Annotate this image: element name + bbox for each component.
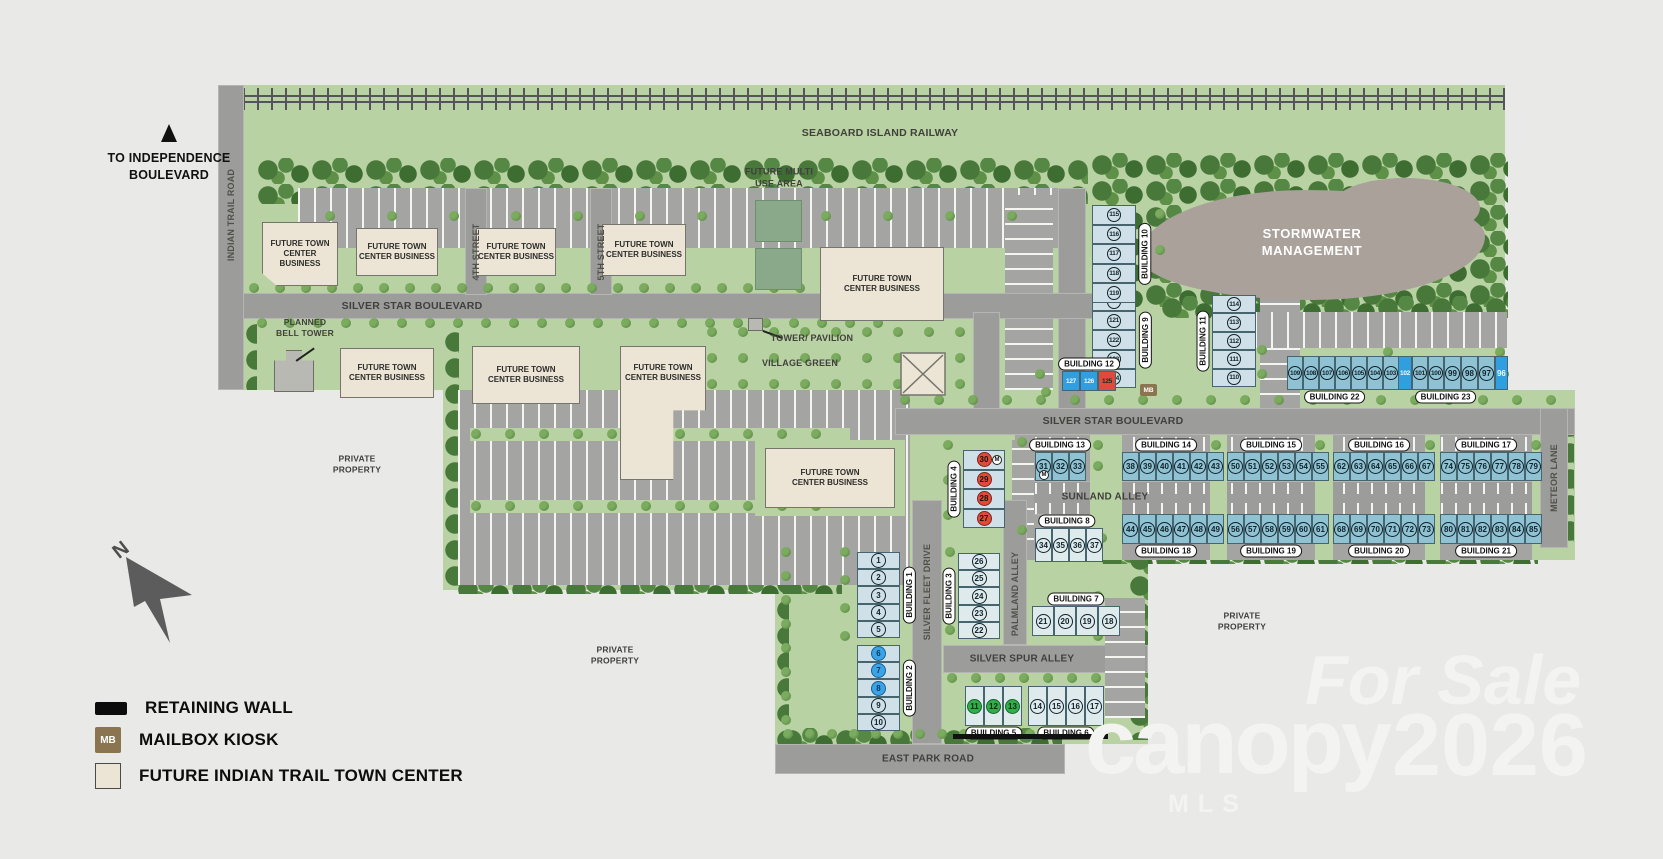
tree-icon <box>483 283 493 293</box>
lot-28: 28 <box>963 489 1005 509</box>
lot-number-100: 100 <box>1429 366 1443 380</box>
lot-58: 58 <box>1261 514 1278 544</box>
road-silver-star-east <box>895 408 1575 435</box>
road-label-meteor: METEOR LANE <box>1549 444 1559 512</box>
lot-number-37: 37 <box>1087 538 1102 553</box>
lot-79: 79 <box>1525 452 1542 481</box>
lot-number-71: 71 <box>1385 522 1400 537</box>
tree-icon <box>387 211 397 221</box>
tree-icon <box>781 619 791 629</box>
building-label: FUTURE TOWN <box>358 363 417 373</box>
lot-73: 73 <box>1418 514 1435 544</box>
lot-6: 6 <box>857 645 900 662</box>
tree-icon <box>341 318 351 328</box>
tree-icon <box>781 691 791 701</box>
tree-icon <box>1091 673 1101 683</box>
lot-72: 72 <box>1401 514 1418 544</box>
tree-icon <box>405 283 415 293</box>
lot-number-79: 79 <box>1526 459 1541 474</box>
building-10: BUILDING 10115116117118119 <box>1092 205 1136 303</box>
lot-110: 110 <box>1212 369 1256 387</box>
lot-9: 9 <box>857 697 900 714</box>
tree-icon <box>995 673 1005 683</box>
building-23-label: BUILDING 23 <box>1415 391 1477 404</box>
tree-icon <box>1067 673 1077 683</box>
tree-icon <box>840 603 850 613</box>
lot-number-101: 101 <box>1413 366 1427 380</box>
lot-number-33: 33 <box>1070 459 1085 474</box>
lot-80: 80 <box>1440 514 1457 544</box>
tree-icon <box>811 429 821 439</box>
lot-number-53: 53 <box>1279 459 1294 474</box>
lot-65: 65 <box>1384 452 1401 481</box>
tree-icon <box>1019 673 1029 683</box>
lot-39: 39 <box>1139 452 1156 481</box>
north-pointer-icon <box>161 124 177 142</box>
tree-icon <box>738 353 748 363</box>
lot-number-3: 3 <box>871 588 886 603</box>
lot-number-50: 50 <box>1228 459 1243 474</box>
lot-number-28: 28 <box>977 491 992 506</box>
lot-71: 71 <box>1384 514 1401 544</box>
lot-117: 117 <box>1092 244 1136 264</box>
tree-icon <box>1002 395 1012 405</box>
building-22: BUILDING 22109108107106105104103 <box>1287 356 1382 390</box>
lot-67: 67 <box>1418 452 1435 481</box>
building-label: CENTER BUSINESS <box>359 252 435 262</box>
tree-icon <box>249 283 259 293</box>
tree-icon <box>453 318 463 328</box>
lot-12: 12 <box>984 686 1003 726</box>
lot-number-13: 13 <box>1005 699 1020 714</box>
tree-icon <box>915 729 925 739</box>
building-label: CENTER BUSINESS <box>792 478 868 488</box>
lot-number-122: 122 <box>1107 333 1121 347</box>
tree-icon <box>781 715 791 725</box>
stormwater-label-line2: MANAGEMENT <box>1262 243 1363 260</box>
lot-number-34: 34 <box>1036 538 1051 553</box>
lot-104: 104 <box>1367 356 1383 390</box>
lot-59: 59 <box>1278 514 1295 544</box>
road-label-east-park: EAST PARK ROAD <box>882 754 974 765</box>
tree-icon <box>781 595 791 605</box>
tree-icon <box>1206 395 1216 405</box>
building-20-label: BUILDING 20 <box>1348 545 1410 558</box>
lot-83: 83 <box>1491 514 1508 544</box>
tree-icon <box>1155 209 1165 219</box>
tree-icon <box>781 547 791 557</box>
lot-number-76: 76 <box>1475 459 1490 474</box>
lot-number-97: 97 <box>1479 366 1494 381</box>
meter-marker-icon: M <box>992 455 1002 465</box>
building-7-label: BUILDING 7 <box>1047 593 1104 606</box>
lot-126: 126 <box>1080 371 1098 391</box>
lot-number-61: 61 <box>1313 522 1328 537</box>
lot-number-5: 5 <box>871 622 886 637</box>
lot-number-59: 59 <box>1279 522 1294 537</box>
tree-icon <box>789 318 799 328</box>
lot-number-39: 39 <box>1140 459 1155 474</box>
tree-icon <box>937 729 947 739</box>
lot-49: 49 <box>1207 514 1224 544</box>
lot-25: 25 <box>958 570 1000 587</box>
lot-116: 116 <box>1092 225 1136 245</box>
building-12: BUILDING 12127126125 <box>1062 371 1116 391</box>
tree-icon <box>827 729 837 739</box>
lot-76: 76 <box>1474 452 1491 481</box>
private-property-label-2: PRIVATE PROPERTY <box>591 645 639 668</box>
private-property-line1: PRIVATE <box>591 645 639 656</box>
lot-number-26: 26 <box>972 554 987 569</box>
lot-17: 17 <box>1085 686 1104 726</box>
legend-retaining-wall-label: RETAINING WALL <box>145 698 293 718</box>
legend-mailbox-kiosk-label: MAILBOX KIOSK <box>139 730 279 750</box>
lot-107: 107 <box>1319 356 1335 390</box>
lot-number-84: 84 <box>1509 522 1524 537</box>
lot-114: 114 <box>1212 295 1256 313</box>
tree-icon <box>709 429 719 439</box>
tree-icon <box>1007 211 1017 221</box>
legend-mailbox-kiosk: MB MAILBOX KIOSK <box>95 727 279 753</box>
tree-icon <box>1257 345 1267 355</box>
lot-number-1: 1 <box>871 553 886 568</box>
watermark-for-sale: For Sale <box>1305 640 1581 720</box>
building-18: BUILDING 18444546474849 <box>1122 514 1210 544</box>
lot-number-58: 58 <box>1262 522 1277 537</box>
tree-icon <box>945 547 955 557</box>
building-19: BUILDING 19565758596061 <box>1227 514 1315 544</box>
building-6: BUILDING 614151617 <box>1028 686 1104 726</box>
lot-number-99: 99 <box>1445 366 1460 381</box>
lot-number-38: 38 <box>1123 459 1138 474</box>
tree-icon <box>955 379 965 389</box>
stormwater-label-line1: STORMWATER <box>1262 226 1363 243</box>
road-label-silver-star-west: SILVER STAR BOULEVARD <box>342 300 483 312</box>
lot-23: 23 <box>958 605 1000 622</box>
tree-icon <box>709 501 719 511</box>
tree-icon <box>397 318 407 328</box>
lot-number-126: 126 <box>1083 378 1095 385</box>
tree-icon <box>971 673 981 683</box>
lot-125: 125 <box>1098 371 1116 391</box>
building-22-label: BUILDING 22 <box>1304 391 1366 404</box>
tree-icon <box>369 318 379 328</box>
tree-icon <box>1546 395 1556 405</box>
lot-100: 100 <box>1428 356 1444 390</box>
building-label: FUTURE TOWN <box>615 240 674 250</box>
retaining-wall-icon <box>95 702 127 715</box>
tree-icon <box>924 327 934 337</box>
north-arrow-shape <box>126 557 192 643</box>
lot-number-73: 73 <box>1419 522 1434 537</box>
tree-icon <box>613 283 623 293</box>
lot-41: 41 <box>1173 452 1190 481</box>
building-7: BUILDING 721201918 <box>1032 606 1120 636</box>
lot-number-110: 110 <box>1227 371 1241 385</box>
tree-icon <box>607 501 617 511</box>
building-8-label: BUILDING 8 <box>1038 515 1095 528</box>
lot-number-54: 54 <box>1296 459 1311 474</box>
tree-icon <box>505 501 515 511</box>
lot-98: 98 <box>1461 356 1478 390</box>
lot-27: 27 <box>963 509 1005 529</box>
lot-number-125: 125 <box>1101 378 1113 385</box>
lot-number-23: 23 <box>972 606 987 621</box>
lot-105: 105 <box>1351 356 1367 390</box>
tree-icon <box>1315 440 1325 450</box>
mailbox-kiosk-icon: MB <box>1140 384 1157 396</box>
lot-number-17: 17 <box>1087 699 1102 714</box>
tree-icon <box>511 211 521 221</box>
lot-number-111: 111 <box>1227 352 1241 366</box>
lot-62: 62 <box>1333 452 1350 481</box>
building-4: BUILDING 430M292827 <box>963 450 1005 528</box>
building-12-label: BUILDING 12 <box>1058 358 1120 371</box>
tree-icon <box>840 575 850 585</box>
lot-number-43: 43 <box>1208 459 1223 474</box>
lot-number-40: 40 <box>1157 459 1172 474</box>
tree-icon <box>353 283 363 293</box>
tree-band-parking-west <box>443 330 459 586</box>
lot-number-63: 63 <box>1351 459 1366 474</box>
lot-number-51: 51 <box>1245 459 1260 474</box>
building-4-label: BUILDING 4 <box>948 460 961 517</box>
pavilion-x-structure <box>900 352 946 396</box>
tree-icon <box>1172 395 1182 405</box>
building-16-label: BUILDING 16 <box>1348 439 1410 452</box>
tree-icon <box>1070 395 1080 405</box>
tree-icon <box>635 211 645 221</box>
lot-113: 113 <box>1212 313 1256 331</box>
tree-icon <box>537 318 547 328</box>
lot-number-49: 49 <box>1208 522 1223 537</box>
lot-number-10: 10 <box>871 715 886 730</box>
lot-78: 78 <box>1508 452 1525 481</box>
lot-10: 10 <box>857 714 900 731</box>
future-business-building-2: FUTURE TOWN CENTER BUSINESS <box>356 228 438 276</box>
lot-64: 64 <box>1367 452 1384 481</box>
tree-icon <box>449 211 459 221</box>
building-11-label: BUILDING 11 <box>1197 310 1210 371</box>
tree-icon <box>1017 525 1027 535</box>
building-label: CENTER BUSINESS <box>263 249 337 269</box>
private-property-line2: PROPERTY <box>1218 622 1266 633</box>
legend-retaining-wall: RETAINING WALL <box>95 698 293 718</box>
lot-101: 101 <box>1412 356 1428 390</box>
future-multi-line1: FUTURE MULTI <box>745 166 813 178</box>
lot-13: 13 <box>1003 686 1022 726</box>
lot-number-113: 113 <box>1227 316 1241 330</box>
building-2: BUILDING 2678910 <box>857 645 900 731</box>
lot-number-29: 29 <box>977 472 992 487</box>
lot-number-77: 77 <box>1492 459 1507 474</box>
lot-42: 42 <box>1190 452 1207 481</box>
lot-number-7: 7 <box>871 663 886 678</box>
tree-icon <box>1093 440 1103 450</box>
lot-1: 1 <box>857 552 900 569</box>
watermark-mls: MLS <box>1168 790 1248 819</box>
tree-icon <box>781 667 791 677</box>
village-green-label: VILLAGE GREEN <box>762 358 838 368</box>
lot-46: 46 <box>1156 514 1173 544</box>
building-15-label: BUILDING 15 <box>1240 439 1302 452</box>
lot-44: 44 <box>1122 514 1139 544</box>
lot-51: 51 <box>1244 452 1261 481</box>
bell-label-line2: BELL TOWER <box>276 328 334 339</box>
tree-icon <box>900 395 910 405</box>
road-label-sunland: SUNLAND ALLEY <box>1062 492 1149 503</box>
tree-icon <box>883 211 893 221</box>
building-20: BUILDING 20686970717273 <box>1333 514 1425 544</box>
lot-63: 63 <box>1350 452 1367 481</box>
building-14-label: BUILDING 14 <box>1135 439 1197 452</box>
tree-icon <box>639 283 649 293</box>
tree-icon <box>1478 395 1488 405</box>
building-18-label: BUILDING 18 <box>1135 545 1197 558</box>
tree-icon <box>691 283 701 293</box>
lot-32: 32 <box>1052 452 1069 481</box>
tree-icon <box>675 501 685 511</box>
private-property-label-3: PRIVATE PROPERTY <box>1218 611 1266 634</box>
tree-icon <box>717 283 727 293</box>
tree-icon <box>565 318 575 328</box>
private-property-line1: PRIVATE <box>1218 611 1266 622</box>
lot-number-60: 60 <box>1296 522 1311 537</box>
lot-number-114: 114 <box>1227 297 1241 311</box>
tree-icon <box>431 283 441 293</box>
lot-112: 112 <box>1212 332 1256 350</box>
tree-icon <box>457 283 467 293</box>
building-16: BUILDING 16626364656667 <box>1333 452 1425 481</box>
tree-icon <box>743 429 753 439</box>
tree-icon <box>947 673 957 683</box>
private-property-label-1: PRIVATE PROPERTY <box>333 454 381 477</box>
lot-number-127: 127 <box>1065 378 1077 385</box>
tree-icon <box>509 318 519 328</box>
lot-106: 106 <box>1335 356 1351 390</box>
watermark-year: 2026 <box>1392 694 1588 796</box>
lot-75: 75 <box>1457 452 1474 481</box>
building-label: FUTURE TOWN <box>634 363 693 373</box>
lot-number-48: 48 <box>1191 522 1206 537</box>
building-8: BUILDING 834353637 <box>1035 528 1099 562</box>
lot-102: 102 <box>1398 356 1412 390</box>
lot-number-11: 11 <box>967 699 982 714</box>
tree-icon <box>800 379 810 389</box>
lot-19: 19 <box>1076 606 1098 636</box>
private-property-line1: PRIVATE <box>333 454 381 465</box>
lot-number-21: 21 <box>1036 614 1051 629</box>
lot-85: 85 <box>1525 514 1542 544</box>
lot-3: 3 <box>857 586 900 603</box>
private-property-line2: PROPERTY <box>333 465 381 476</box>
building-3: BUILDING 32625242322 <box>958 553 1000 639</box>
building-15: BUILDING 15505152535455 <box>1227 452 1315 481</box>
to-independence-label: TO INDEPENDENCE BOULEVARD <box>108 150 231 184</box>
future-multi-line2: USE AREA <box>745 178 813 190</box>
lot-number-68: 68 <box>1334 522 1349 537</box>
lot-number-4: 4 <box>871 605 886 620</box>
lot-number-117: 117 <box>1107 247 1121 261</box>
lot-number-8: 8 <box>871 681 886 696</box>
lot-number-83: 83 <box>1492 522 1507 537</box>
lot-number-108: 108 <box>1304 366 1318 380</box>
lot-number-118: 118 <box>1107 267 1121 281</box>
lot-21: 21 <box>1032 606 1054 636</box>
lot-70: 70 <box>1367 514 1384 544</box>
lot-number-98: 98 <box>1462 366 1477 381</box>
building-17-label: BUILDING 17 <box>1455 439 1517 452</box>
lot-number-6: 6 <box>871 646 886 661</box>
lot-36: 36 <box>1069 528 1086 562</box>
tree-icon <box>1376 395 1386 405</box>
lot-97: 97 <box>1478 356 1495 390</box>
multi-use-square-2 <box>755 248 802 290</box>
lot-number-69: 69 <box>1351 522 1366 537</box>
lot-77: 77 <box>1491 452 1508 481</box>
tree-icon <box>743 501 753 511</box>
lot-number-2: 2 <box>871 570 886 585</box>
future-business-building-1: FUTURE TOWN CENTER BUSINESS <box>262 222 338 286</box>
lot-number-20: 20 <box>1058 614 1073 629</box>
lot-number-27: 27 <box>977 511 992 526</box>
building-label: CENTER BUSINESS <box>606 250 682 260</box>
future-business-building-6: FUTURE TOWN CENTER BUSINESS <box>340 348 434 398</box>
building-label: CENTER BUSINESS <box>625 373 701 383</box>
future-business-building-7: FUTURE TOWN CENTER BUSINESS <box>472 346 580 404</box>
lot-34: 34 <box>1035 528 1052 562</box>
lot-69: 69 <box>1350 514 1367 544</box>
building-label: CENTER BUSINESS <box>478 252 554 262</box>
tree-icon <box>943 440 953 450</box>
tree-icon <box>707 327 717 337</box>
lot-53: 53 <box>1278 452 1295 481</box>
lot-122: 122 <box>1092 330 1136 349</box>
lot-number-15: 15 <box>1049 699 1064 714</box>
building-1-label: BUILDING 1 <box>903 566 916 623</box>
tree-icon <box>539 429 549 439</box>
lot-number-46: 46 <box>1157 522 1172 537</box>
tree-icon <box>831 379 841 389</box>
tree-icon <box>509 283 519 293</box>
tree-icon <box>1274 395 1284 405</box>
lot-15: 15 <box>1047 686 1066 726</box>
building-21: BUILDING 21808182838485 <box>1440 514 1532 544</box>
tree-icon <box>743 283 753 293</box>
lot-number-116: 116 <box>1107 227 1121 241</box>
tree-icon <box>945 625 955 635</box>
lot-2: 2 <box>857 569 900 586</box>
tower-pavilion-label: TOWER/ PAVILION <box>771 333 854 343</box>
lot-number-121: 121 <box>1107 314 1121 328</box>
meter-marker-icon: M <box>1039 470 1049 480</box>
tree-icon <box>862 327 872 337</box>
tree-icon <box>471 501 481 511</box>
tree-icon <box>862 353 872 363</box>
lot-16: 16 <box>1066 686 1085 726</box>
lot-119: 119 <box>1092 283 1136 303</box>
lot-number-119: 119 <box>1107 286 1121 300</box>
lot-8: 8 <box>857 679 900 696</box>
future-business-building-3: FUTURE TOWN CENTER BUSINESS <box>476 228 556 276</box>
tree-icon <box>1211 440 1221 450</box>
tree-icon <box>1240 395 1250 405</box>
retaining-wall <box>953 734 1108 739</box>
tree-icon <box>769 379 779 389</box>
multi-use-square-1 <box>755 200 802 242</box>
lot-20: 20 <box>1054 606 1076 636</box>
building-5: BUILDING 5111213 <box>965 686 1022 726</box>
